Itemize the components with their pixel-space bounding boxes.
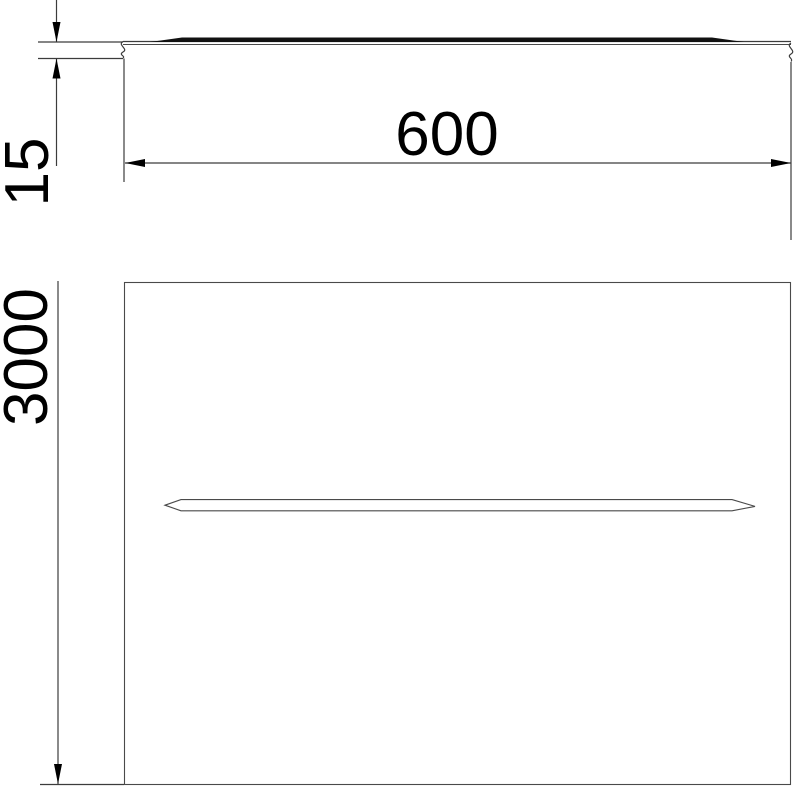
dimension-length-3000: 3000 <box>0 281 124 785</box>
dim600-arrow-right-icon <box>771 159 791 167</box>
profile-right-curl-edge <box>789 43 792 62</box>
dimension-height-15: 15 <box>0 0 123 206</box>
stiffening-rib <box>165 500 755 511</box>
dim600-arrow-left-icon <box>125 159 145 167</box>
dimension-width-600: 600 <box>124 59 791 241</box>
side-view-profile <box>121 38 792 62</box>
cover-technical-drawing: 15 600 3000 <box>0 0 794 786</box>
dim15-arrow-up-icon <box>53 59 61 79</box>
drawing-canvas: 15 600 3000 <box>0 0 794 786</box>
profile-crown-thickness <box>150 38 744 43</box>
top-view-plate <box>125 283 791 785</box>
dim15-arrow-down-icon <box>53 22 61 42</box>
dim3000-label: 3000 <box>0 288 61 426</box>
dim600-label: 600 <box>395 100 498 169</box>
cover-plate-outline <box>125 283 791 785</box>
dim15-label: 15 <box>0 138 62 207</box>
dim3000-arrow-down-icon <box>54 764 62 784</box>
